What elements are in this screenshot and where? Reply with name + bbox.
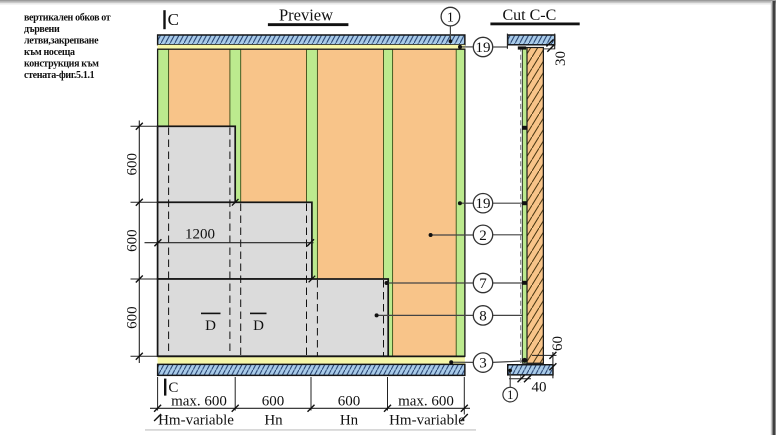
- svg-text:600: 600: [262, 393, 285, 409]
- svg-text:max. 600: max. 600: [398, 393, 454, 409]
- svg-text:600: 600: [125, 306, 141, 329]
- svg-text:600: 600: [125, 229, 141, 252]
- svg-text:19: 19: [476, 196, 491, 212]
- svg-text:7: 7: [479, 276, 487, 292]
- svg-text:60: 60: [550, 336, 566, 351]
- svg-text:Hm-variable: Hm-variable: [389, 413, 465, 429]
- svg-text:40: 40: [532, 380, 547, 396]
- svg-text:2: 2: [479, 228, 487, 244]
- svg-text:D: D: [253, 318, 264, 334]
- svg-text:600: 600: [338, 393, 361, 409]
- svg-text:C: C: [168, 380, 178, 396]
- svg-text:конструкция към: конструкция към: [24, 59, 99, 70]
- svg-text:8: 8: [479, 308, 487, 324]
- svg-text:19: 19: [476, 40, 491, 56]
- svg-text:стената-фиг.5.1.1: стената-фиг.5.1.1: [24, 70, 95, 81]
- svg-text:30: 30: [553, 51, 569, 66]
- svg-text:1: 1: [507, 388, 513, 402]
- svg-text:Preview: Preview: [279, 6, 333, 25]
- svg-text:3: 3: [479, 356, 487, 372]
- svg-text:1: 1: [447, 11, 454, 26]
- svg-text:вертикален обков от: вертикален обков от: [24, 13, 111, 24]
- svg-text:Hn: Hn: [340, 413, 359, 429]
- svg-text:дървени: дървени: [24, 24, 60, 35]
- svg-text:D: D: [205, 318, 216, 334]
- svg-text:Hn: Hn: [264, 413, 283, 429]
- svg-text:max. 600: max. 600: [171, 393, 227, 409]
- svg-text:към носеща: към носеща: [24, 47, 75, 58]
- svg-text:1200: 1200: [185, 227, 215, 243]
- svg-text:Hm-variable: Hm-variable: [158, 413, 234, 429]
- svg-text:C: C: [168, 10, 179, 29]
- svg-text:600: 600: [125, 153, 141, 176]
- svg-text:Cut C-C: Cut C-C: [503, 7, 557, 24]
- svg-text:летви,закрепване: летви,закрепване: [24, 36, 99, 47]
